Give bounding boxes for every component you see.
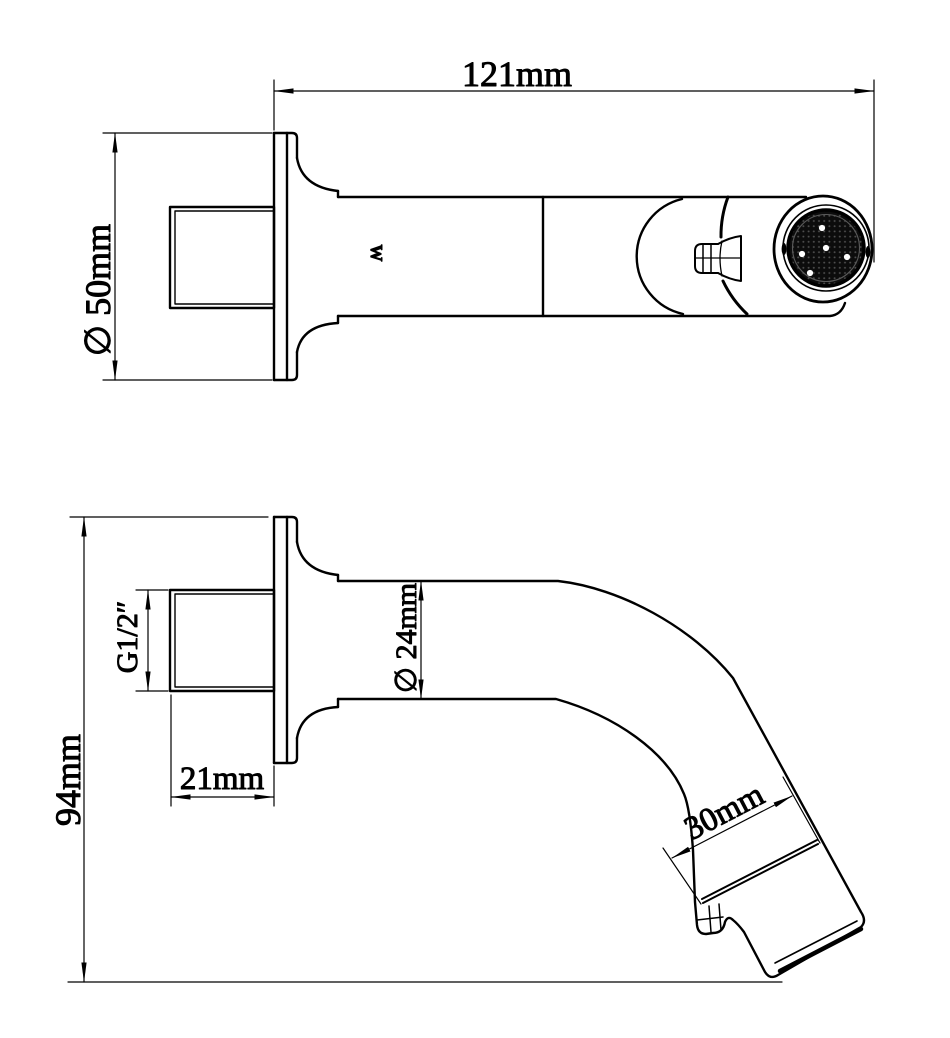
drawing-sheet: 121mm ∅ 50mm W [0, 0, 950, 1038]
dim-flange-diameter [103, 133, 272, 380]
aerator-cap-side-view [702, 840, 861, 971]
spray-knob-top-view [695, 236, 741, 281]
spray-knob-side-view [697, 904, 723, 932]
dim-overall-length [274, 80, 874, 262]
dim-label-24mm: ∅ 24mm [390, 583, 423, 693]
dim-overall-height [68, 517, 782, 982]
dim-label-94mm: 94mm [48, 734, 88, 826]
technical-drawing: 121mm ∅ 50mm W [0, 0, 950, 1038]
dim-label-21mm: 21mm [180, 761, 265, 797]
dim-label-121mm: 121mm [462, 54, 572, 94]
thread-inlet-top-view [170, 207, 274, 308]
dim-label-50mm: ∅ 50mm [78, 224, 118, 356]
flange-plate-top-view [274, 133, 338, 380]
dim-label-30mm: 30mm [679, 777, 771, 848]
thread-inlet-side-view [170, 590, 274, 691]
aerator-face-top-view [774, 196, 872, 302]
extension-line [783, 777, 820, 843]
body-marking-w: W [367, 245, 386, 262]
top-view: 121mm ∅ 50mm W [78, 54, 874, 380]
aerator-rim [780, 929, 861, 971]
extension-line [663, 848, 701, 904]
dim-label-g12: G1/2″ [111, 601, 144, 674]
spout-tube-top-view [338, 197, 845, 316]
flange-plate-side-view [274, 517, 338, 763]
side-view: 94mm G1/2″ 21mm ∅ 24mm 30mm [48, 517, 864, 982]
bend-arcs-top-view [637, 197, 747, 314]
